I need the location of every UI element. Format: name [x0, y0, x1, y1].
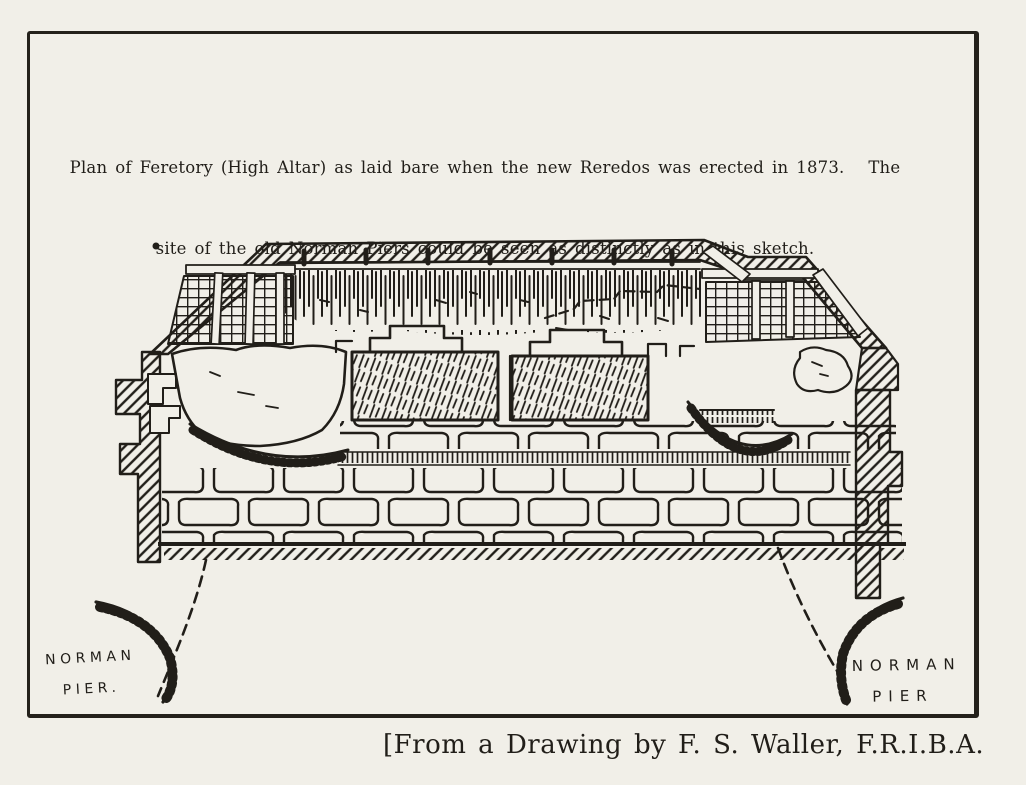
figure-caption: Plan of Feretory (High Altar) as laid ba… [45, 100, 925, 316]
norman-pier-label-left: NORMAN PIER. [44, 641, 137, 708]
scanned-book-page: Plan of Feretory (High Altar) as laid ba… [0, 0, 1026, 785]
pier-label-right-line-2: PIER [872, 680, 962, 713]
norman-pier-label-right: NORMAN PIER [851, 649, 962, 713]
credit-line: [From a Drawing by F. S. Waller, F.R.I.B… [383, 730, 984, 760]
pier-label-left-line-2: PIER. [62, 672, 138, 707]
caption-line-2: site of the old Norman Piers could be se… [45, 235, 925, 262]
pier-label-left-line-1: NORMAN [44, 641, 136, 677]
caption-line-1: Plan of Feretory (High Altar) as laid ba… [45, 154, 925, 181]
pier-label-right-line-1: NORMAN [851, 649, 961, 682]
